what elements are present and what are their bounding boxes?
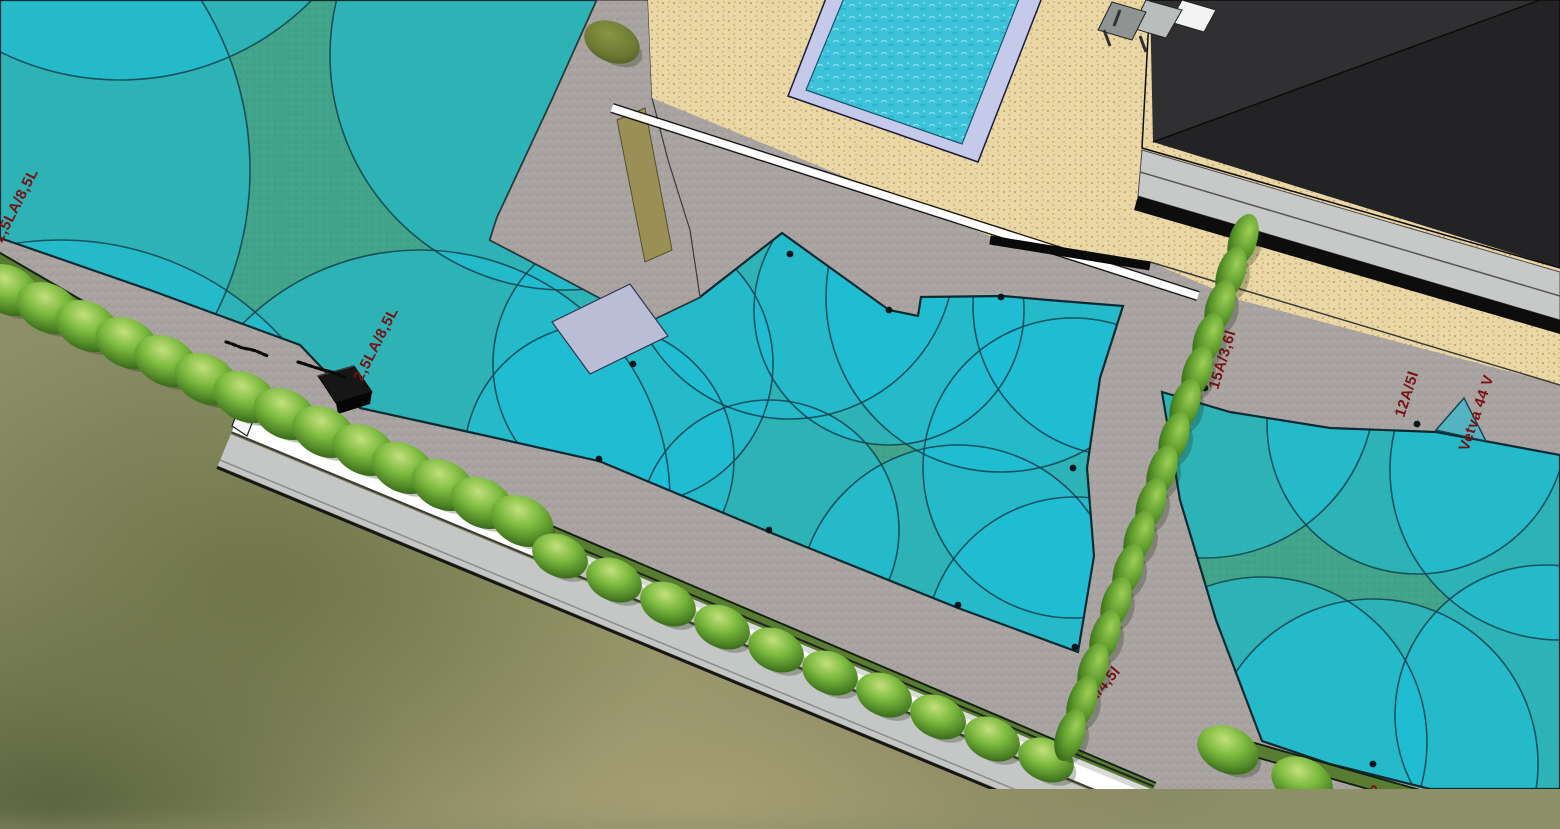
site-plan-canvas[interactable]: 2,5LA/8,5L 2,5LA/8,5L 2,6 15A/3,6l 12A/5… [0,0,1560,789]
